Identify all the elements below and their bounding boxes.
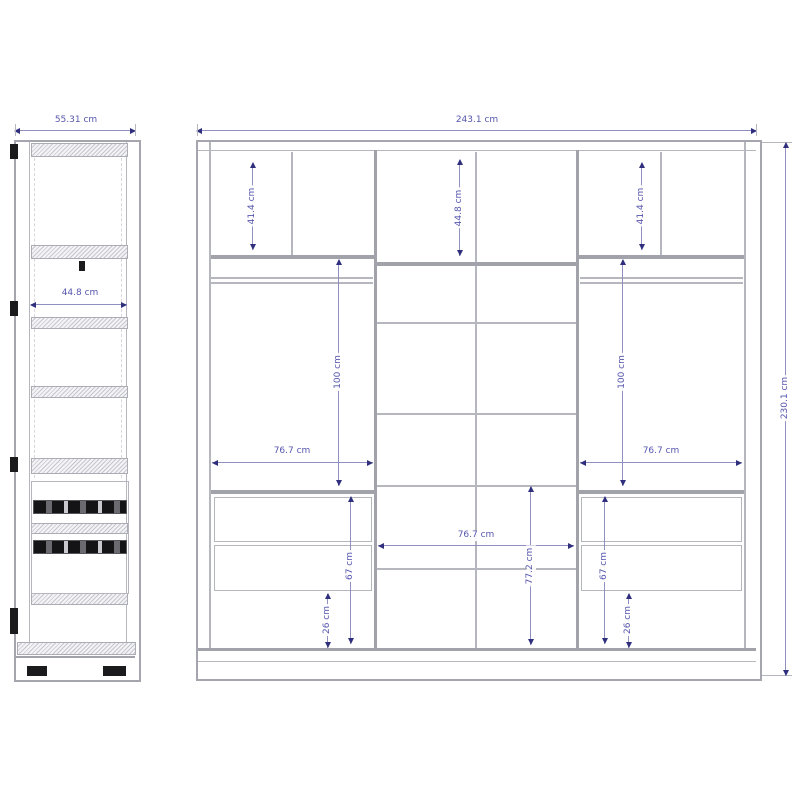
middle-shelf (377, 568, 576, 570)
middle-width-dimension-label: 76.7 cm (456, 531, 497, 541)
extension-tick (135, 124, 136, 136)
top-middle-dimension-label: 44.8 cm (455, 188, 465, 229)
dimension-arrow-down-icon (626, 642, 632, 648)
right-width-dimension-line (580, 462, 742, 463)
right-base-dimension-label: 26 cm (624, 604, 634, 636)
extension-tick (15, 124, 16, 136)
side-depth-dimension-label: 44.8 cm (60, 289, 101, 299)
middle-width-dimension-line (378, 545, 574, 546)
dimension-arrow-right-icon (568, 543, 574, 549)
left-lower-shelf (211, 490, 374, 494)
side-drawer-slide (33, 500, 127, 514)
middle-shelf (377, 485, 576, 487)
top-band-divider-right (660, 152, 662, 255)
front-bottom-shelf-line (198, 648, 756, 651)
left-width-dimension-line (212, 462, 373, 463)
dimension-arrow-right-icon (367, 460, 373, 466)
hinge-mark (10, 608, 18, 634)
hinge-mark (10, 301, 18, 316)
dimension-arrow-up-icon (325, 593, 331, 599)
dimension-arrow-up-icon (620, 259, 626, 265)
extension-tick (756, 124, 757, 136)
side-drawer-slide (33, 540, 127, 554)
side-front-panel-line (29, 142, 30, 654)
side-plinth-line (16, 656, 135, 658)
front-carcass-outline (196, 140, 762, 681)
dimension-arrow-down-icon (250, 244, 256, 250)
hinge-mark (10, 457, 18, 472)
middle-lower-dimension-label: 77.2 cm (526, 546, 536, 587)
side-bottom-panel-hatch (17, 642, 136, 655)
dimension-arrow-down-icon (348, 638, 354, 644)
dimension-arrow-up-icon (457, 159, 463, 165)
dimension-arrow-up-icon (348, 496, 354, 502)
dimension-arrow-down-icon (783, 670, 789, 676)
front-top-panel-line (198, 150, 756, 151)
dimension-arrow-down-icon (528, 639, 534, 645)
left-base-dimension-label: 26 cm (323, 604, 333, 636)
dimension-arrow-down-icon (325, 642, 331, 648)
left-top-shelf (211, 255, 374, 259)
side-shelf-hatch (31, 245, 128, 259)
right-drawer-front (581, 497, 742, 542)
front-left-panel-line (209, 142, 211, 648)
side-width-dimension-label: 55.31 cm (53, 116, 99, 126)
dimension-arrow-up-icon (783, 142, 789, 148)
technical-drawing-canvas: 55.31 cm 44.8 cm (0, 0, 800, 800)
top-right-dimension-label: 41.4 cm (637, 186, 647, 227)
middle-shelf (377, 413, 576, 415)
dimension-arrow-up-icon (626, 593, 632, 599)
dimension-arrow-down-icon (620, 480, 626, 486)
dimension-arrow-down-icon (602, 638, 608, 644)
side-shelf-hatch (31, 593, 128, 605)
right-width-dimension-label: 76.7 cm (641, 447, 682, 457)
right-hanging-dimension-label: 100 cm (618, 353, 628, 391)
dimension-arrow-left-icon (30, 302, 36, 308)
top-band-divider-left (291, 152, 293, 255)
left-hanging-dimension-label: 100 cm (334, 353, 344, 391)
dimension-arrow-up-icon (528, 486, 534, 492)
dimension-arrow-down-icon (336, 480, 342, 486)
foot-mark (103, 666, 126, 676)
side-shelf-hatch (31, 386, 128, 398)
left-drawer-dimension-label: 67 cm (346, 550, 356, 582)
dimension-arrow-up-icon (602, 496, 608, 502)
left-hanging-rod (211, 282, 373, 284)
right-hanging-rod (580, 282, 743, 284)
middle-column-divider (475, 152, 477, 648)
dimension-arrow-right-icon (736, 460, 742, 466)
dimension-arrow-left-icon (212, 460, 218, 466)
foot-mark (27, 666, 47, 676)
dimension-arrow-left-icon (580, 460, 586, 466)
side-top-panel-hatch (31, 143, 128, 157)
hinge-mark (10, 144, 18, 159)
side-width-dimension-line (15, 130, 136, 131)
front-right-panel-line (744, 142, 746, 648)
middle-top-shelf (377, 262, 576, 266)
front-width-dimension-line (197, 130, 757, 131)
side-shelf-hatch (31, 317, 128, 329)
left-drawer-front (214, 497, 372, 542)
front-plinth-line (198, 661, 756, 662)
left-width-dimension-label: 76.7 cm (272, 447, 313, 457)
right-lower-shelf (579, 490, 744, 494)
right-hanging-rod (580, 277, 743, 279)
side-shelf-hatch (31, 458, 128, 474)
dimension-arrow-up-icon (639, 162, 645, 168)
dimension-arrow-left-icon (378, 543, 384, 549)
side-drawer-zone-outline (31, 481, 129, 594)
top-left-dimension-label: 41.4 cm (248, 186, 258, 227)
handle-mark (79, 261, 85, 271)
middle-shelf (377, 322, 576, 324)
front-height-dimension-label: 230.1 cm (781, 375, 791, 421)
dimension-arrow-down-icon (457, 250, 463, 256)
dimension-arrow-up-icon (250, 162, 256, 168)
front-width-dimension-label: 243.1 cm (454, 116, 500, 126)
section-divider-right (576, 150, 579, 648)
right-top-shelf (579, 255, 744, 259)
right-drawer-dimension-label: 67 cm (600, 550, 610, 582)
dimension-arrow-right-icon (121, 302, 127, 308)
section-divider-left (374, 150, 377, 648)
side-depth-dimension-line (31, 304, 127, 305)
dimension-arrow-down-icon (639, 244, 645, 250)
extension-tick (197, 124, 198, 136)
left-hanging-rod (211, 277, 373, 279)
dimension-arrow-up-icon (336, 259, 342, 265)
